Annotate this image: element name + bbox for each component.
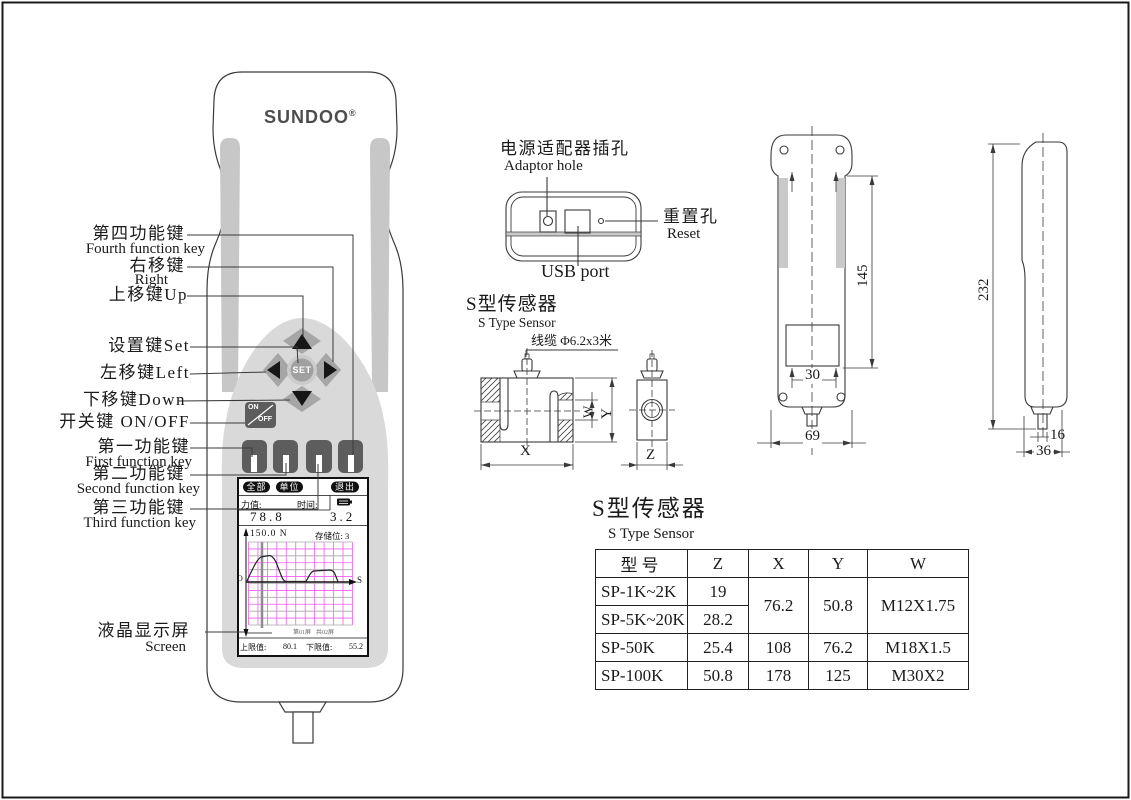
storage-label: 存储位: 3 [315,530,349,542]
cell-z: 28.2 [688,606,749,634]
table-row: SP-50K 25.4 108 76.2 M18X1.5 [596,634,969,662]
header-w: W [868,550,969,578]
cell-model: SP-50K [596,634,688,662]
usb-port-label: USB port [541,262,610,281]
adaptor-hole-label-en: Adaptor hole [504,159,583,175]
dim-36-label: 36 [1034,444,1053,460]
cell-x: 108 [749,634,809,662]
cell-y-merged: 50.8 [809,578,868,634]
cell-y: 125 [809,662,868,690]
cell-w: M30X2 [868,662,969,690]
sensor-spec-table: 型号 Z X Y W SP-1K~2K 19 76.2 50.8 M12X1.7… [595,549,969,690]
spec-table-title-cn: S型传感器 [592,497,707,521]
cell-z: 19 [688,578,749,606]
on-label: ON [248,404,259,411]
spec-table-title-en: S Type Sensor [608,527,694,543]
callout-third-function-key-en: Third function key [84,516,196,532]
header-z: Z [688,550,749,578]
dim-16-label: 16 [1050,428,1065,444]
softkey-all: 全部 [243,482,270,493]
lower-limit-value: 55.2 [349,642,363,651]
callout-set-key: 设置键Set [108,337,190,355]
top-view-drawing [506,177,658,266]
upper-limit-value: 80.1 [283,642,297,651]
callout-down-key: 下移键Down [83,391,186,409]
lower-limit-label: 下限值: [306,642,332,653]
cell-model: SP-5K~20K [596,606,688,634]
cell-model: SP-1K~2K [596,578,688,606]
sensor-title-en: S Type Sensor [478,316,556,330]
dim-145-label: 145 [856,265,872,288]
reset-label-en: Reset [667,227,700,243]
dim-w-label: W [581,406,595,418]
dim-30-label: 30 [803,368,822,384]
reset-hole-shape [599,219,604,224]
table-row: SP-100K 50.8 178 125 M30X2 [596,662,969,690]
dim-y-label: Y [600,408,616,419]
cable-spec-label: 线缆 Φ6.2x3米 [531,334,612,348]
callout-second-function-key-en: Second function key [77,482,200,498]
callout-screen-en: Screen [145,640,186,656]
page-total: 共02屏 [316,627,334,636]
sensor-title-cn: S型传感器 [466,295,558,315]
adaptor-socket [540,211,556,232]
right-grip-strip [370,138,390,392]
cell-z: 50.8 [688,662,749,690]
device-front-drawing [207,72,403,743]
side-view-drawing [988,133,1070,457]
battery-icon [337,499,352,506]
header-y: Y [809,550,868,578]
cell-x-merged: 76.2 [749,578,809,634]
callout-onoff-key: 开关键 ON/OFF [59,413,190,431]
left-grip-strip [220,138,240,392]
cell-x: 178 [749,662,809,690]
callout-up-key: 上移键Up [109,286,188,304]
dim-69-label: 69 [803,429,822,445]
brand-logo: SUNDOO® [264,107,357,128]
time-value: 3.2 [330,509,355,525]
reset-label-cn: 重置孔 [663,208,719,226]
callout-left-key: 左移键Left [100,364,190,382]
page-current: 第01屏 [293,627,311,636]
fullscale-label: 150.0 N [250,529,288,539]
cell-y: 76.2 [809,634,868,662]
dim-232-label: 232 [977,279,993,302]
adaptor-hole-label-cn: 电源适配器插孔 [500,140,630,158]
table-row: SP-1K~2K 19 76.2 50.8 M12X1.75 [596,578,969,606]
force-value: 78.8 [250,509,285,525]
dim-z-label: Z [646,448,655,464]
sensor-front-view [474,348,618,470]
cell-z: 25.4 [688,634,749,662]
off-label: OFF [258,416,272,423]
graph-origin-label: O [237,574,243,583]
time-label: 时间: [297,498,318,511]
softkey-exit: 退出 [331,482,359,493]
manual-diagram-page: SUNDOO® 第四功能键 Fourth function key 右移键 Ri… [0,0,1131,800]
rear-view-drawing [757,126,878,455]
table-header-row: 型号 Z X Y W [596,550,969,578]
graph-axis-label: S [357,575,362,585]
softkey-unit: 单位 [276,482,303,493]
cell-w: M18X1.5 [868,634,969,662]
header-model: 型号 [596,550,688,578]
header-x: X [749,550,809,578]
cell-model: SP-100K [596,662,688,690]
cell-w-merged: M12X1.75 [868,578,969,634]
callout-screen-cn: 液晶显示屏 [98,622,191,640]
set-key-label: SET [289,365,315,375]
dim-x-label: X [520,444,531,460]
upper-limit-label: 上限值: [240,642,266,653]
